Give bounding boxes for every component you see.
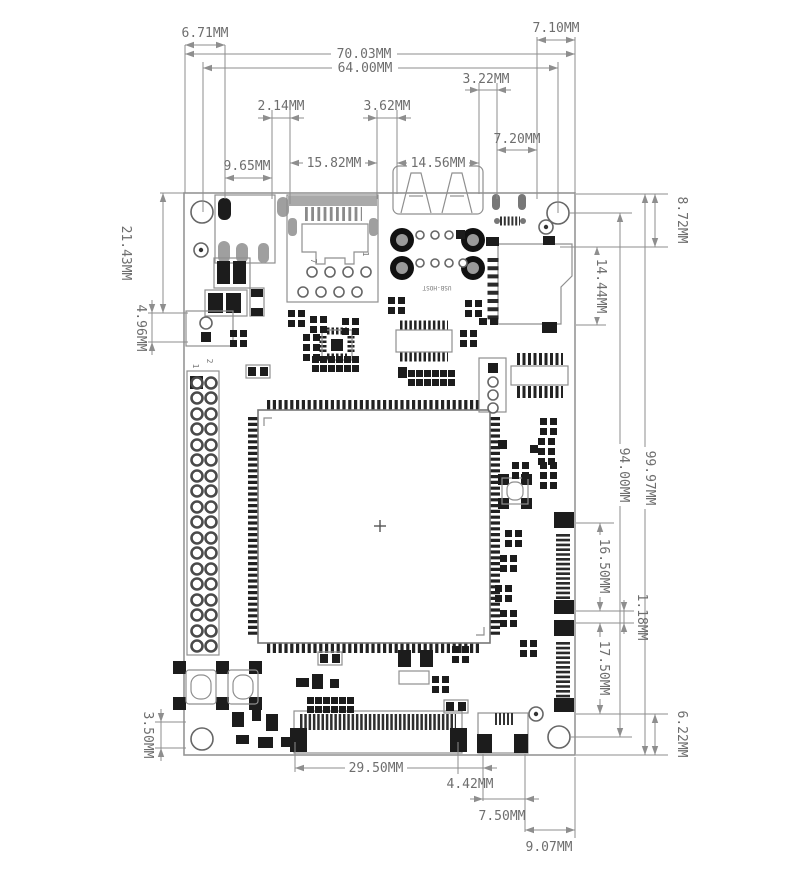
- dim-label-3-62: 3.62MM: [364, 99, 411, 114]
- dim-label-1-18: 1.18MM: [634, 594, 649, 641]
- mounting-hole-top-left: [191, 201, 213, 223]
- dim-label-6-22: 6.22MM: [674, 711, 689, 758]
- rj45-pin1-label: 1: [361, 252, 370, 257]
- dim-label-15-82: 15.82MM: [307, 156, 362, 171]
- dim-label-14-56: 14.56MM: [411, 156, 466, 171]
- dimensions-top: 6.71MM 70.03MM 64.00MM 7.10MM 2.14MM 3.6…: [182, 21, 580, 213]
- gpio-pin2-label: 2: [205, 359, 214, 364]
- drawing-svg: 7 1 USB-HOST: [0, 0, 800, 881]
- rj45-pin7-label: 7: [309, 259, 318, 264]
- dim-label-3-50: 3.50MM: [140, 712, 155, 759]
- dim-label-4-96: 4.96MM: [133, 305, 148, 352]
- dim-label-3-22: 3.22MM: [463, 72, 510, 87]
- dimensions-bottom: 29.50MM 4.42MM 7.50MM 9.07MM: [295, 742, 575, 855]
- dim-label-16-50: 16.50MM: [596, 539, 611, 594]
- dim-label-4-42: 4.42MM: [447, 777, 494, 792]
- dim-label-29-50: 29.50MM: [349, 761, 404, 776]
- dim-label-7-50: 7.50MM: [479, 809, 526, 824]
- sop-ic: [396, 325, 452, 357]
- dim-label-7-20: 7.20MM: [494, 132, 541, 147]
- dim-label-99-97: 99.97MM: [642, 451, 657, 506]
- mounting-hole-bottom-left: [191, 728, 213, 750]
- dim-label-9-65: 9.65MM: [224, 159, 271, 174]
- usb-host-label: USB-HOST: [422, 284, 451, 291]
- dimensions-right: 8.72MM 14.44MM 94.00MM 99.97MM 16.50MM 1…: [560, 194, 689, 758]
- pcb-dimension-drawing: 7 1 USB-HOST: [0, 0, 800, 881]
- dim-label-64-00: 64.00MM: [338, 61, 393, 76]
- dim-label-7-10: 7.10MM: [533, 21, 580, 36]
- mounting-hole-bottom-right: [548, 726, 570, 748]
- main-ic-qfp: [253, 405, 495, 648]
- dim-label-70-03: 70.03MM: [337, 47, 392, 62]
- dim-label-94-00: 94.00MM: [616, 448, 631, 503]
- dim-label-2-14: 2.14MM: [258, 99, 305, 114]
- dim-label-8-72: 8.72MM: [674, 197, 689, 244]
- dim-label-21-43: 21.43MM: [118, 226, 133, 281]
- dim-label-14-44: 14.44MM: [593, 259, 608, 314]
- dim-label-6-71: 6.71MM: [182, 26, 229, 41]
- dim-label-17-50: 17.50MM: [596, 641, 611, 696]
- gpio-pin1-label: 1: [191, 364, 200, 369]
- dimensions-left: 21.43MM 4.96MM 3.50MM: [118, 193, 188, 761]
- dim-label-9-07: 9.07MM: [526, 840, 573, 855]
